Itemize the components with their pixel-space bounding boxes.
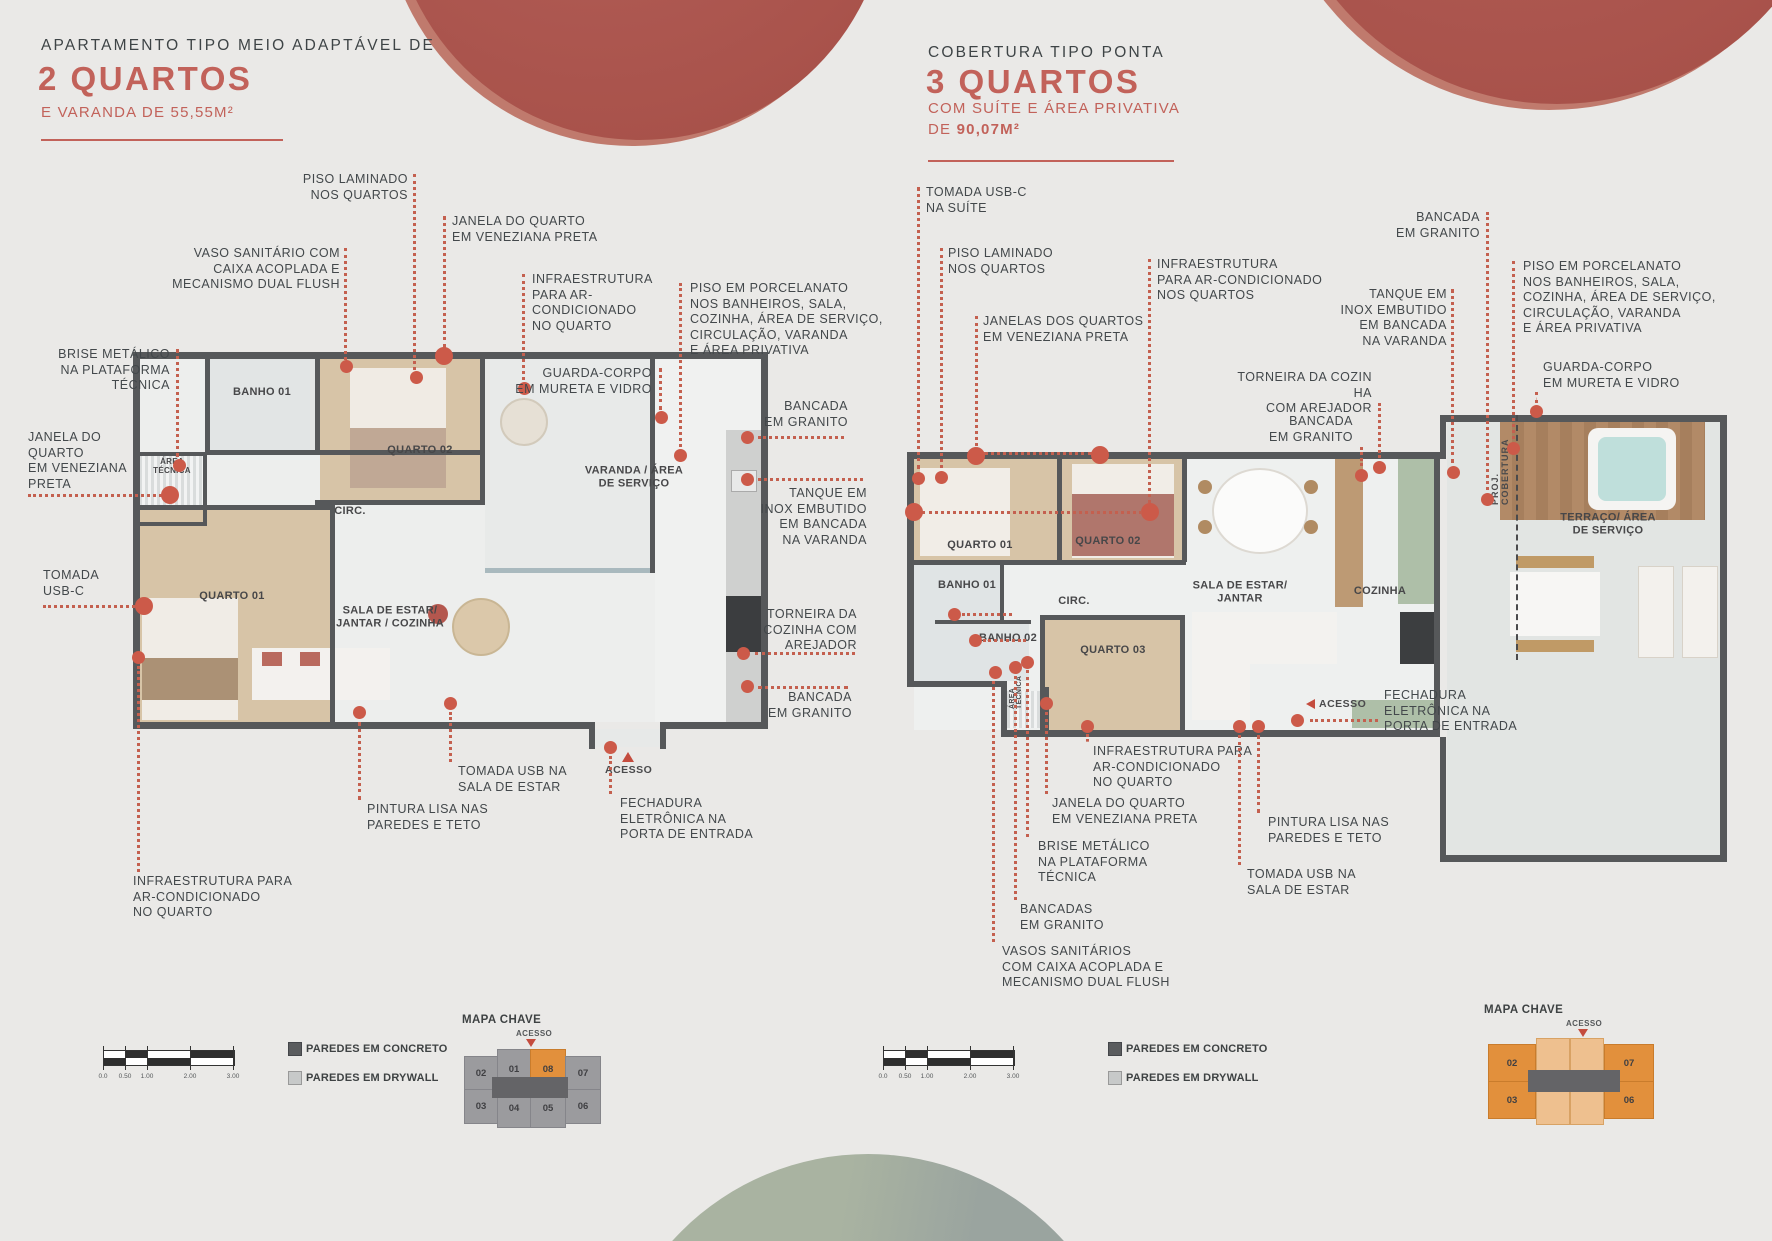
legend-label-concrete: PAREDES EM CONCRETO	[306, 1043, 448, 1055]
room-label-quarto2: QUARTO 02	[387, 444, 452, 457]
leader-line	[43, 605, 135, 608]
right-title-divider	[928, 160, 1174, 162]
map-unit-06: 06	[565, 1089, 601, 1124]
room-label-varanda: VARANDA / ÁREA DE SERVIÇO	[585, 465, 683, 490]
callout-dot	[948, 608, 961, 621]
scale-tick	[190, 1046, 191, 1070]
callout-dot	[741, 680, 754, 693]
varanda-table	[500, 398, 548, 446]
callout-dot	[655, 411, 668, 424]
annotation-janelas-quartos: JANELAS DOS QUARTOS EM VENEZIANA PRETA	[983, 314, 1143, 345]
room-label-terraco: TERRAÇO/ ÁREA DE SERVIÇO	[1560, 512, 1656, 537]
left-title-headline: 2 QUARTOS	[38, 60, 252, 98]
leader-line	[1257, 735, 1260, 813]
leader-line	[176, 349, 179, 457]
oval-dining-table	[1212, 468, 1308, 554]
wall	[935, 620, 1031, 624]
leader-line	[1378, 403, 1381, 458]
scale-tick-label: 2.00	[184, 1073, 197, 1080]
legend-swatch-drywall	[1108, 1071, 1122, 1085]
right-quarto3-floor	[1045, 620, 1180, 730]
annotation-brise: BRISE METÁLICO NA PLATAFORMA TÉCNICA	[1038, 839, 1150, 886]
annotation-tanque: TANQUE EM INOX EMBUTIDO EM BANCADA NA VA…	[717, 486, 867, 548]
callout-dot	[989, 666, 1002, 679]
legend-label-drywall: PAREDES EM DRYWALL	[1126, 1072, 1259, 1084]
room-label-banho1: BANHO 01	[938, 579, 996, 592]
annotation-infra-ar: INFRAESTRUTURA PARA AR- CONDICIONADO NO …	[532, 272, 653, 334]
callout-dot	[340, 360, 353, 373]
right-title-eyebrow: COBERTURA TIPO PONTA	[928, 44, 1165, 62]
scale-bar	[103, 1050, 235, 1066]
callout-dot	[1021, 656, 1034, 669]
wall	[1440, 737, 1446, 857]
room-label-quarto1: QUARTO 01	[947, 539, 1012, 552]
wall	[133, 722, 593, 729]
scale-segment	[884, 1058, 906, 1065]
annotation-janela-quarto-top: JANELA DO QUARTO EM VENEZIANA PRETA	[452, 214, 598, 245]
sofa	[1192, 612, 1337, 664]
annotation-tomada-usbc-suite: TOMADA USB-C NA SUÍTE	[926, 185, 1027, 216]
leader-line	[413, 174, 416, 370]
annotation-torneira: TORNEIRA DA COZINHA COM AREJADOR	[707, 607, 857, 654]
scale-segment	[191, 1058, 234, 1065]
callout-dot	[741, 473, 754, 486]
decor-circle-bottom	[604, 1154, 1132, 1241]
scale-segment	[971, 1058, 1014, 1065]
right-title-area-value: 90,07M²	[957, 121, 1020, 138]
leader-line	[755, 652, 855, 655]
scale-tick-label: 2.00	[964, 1073, 977, 1080]
room-label-quarto1: QUARTO 01	[199, 590, 264, 603]
callout-dot	[444, 697, 457, 710]
callout-dot	[1081, 720, 1094, 733]
callout-dot	[161, 486, 179, 504]
wall	[135, 452, 207, 456]
room-label-sala: SALA DE ESTAR/ JANTAR / COZINHA	[336, 605, 444, 630]
callout-dot	[967, 447, 985, 465]
scale-segment	[928, 1051, 971, 1058]
scale-segment	[971, 1051, 1014, 1058]
leader-line	[917, 187, 920, 469]
annotation-piso-laminado: PISO LAMINADO NOS QUARTOS	[948, 246, 1053, 277]
callout-dot	[1141, 503, 1159, 521]
annotation-torneira: TORNEIRA DA COZIN​HA COM AREJADOR	[1222, 370, 1372, 417]
scale-segment	[126, 1058, 148, 1065]
left-title-eyebrow: APARTAMENTO TIPO MEIO ADAPTÁVEL DE	[41, 37, 435, 55]
scale-tick	[970, 1046, 971, 1070]
annotation-vaso-sanitario: VASO SANITÁRIO COM CAIXA ACOPLADA E MECA…	[140, 246, 340, 293]
annotation-piso-laminado: PISO LAMINADO NOS QUARTOS	[248, 172, 408, 203]
scale-segment	[191, 1051, 234, 1058]
right-title-subline2-prefix: DE	[928, 121, 957, 138]
annotation-tomada-usb-sala: TOMADA USB NA SALA DE ESTAR	[458, 764, 567, 795]
wall	[1040, 615, 1185, 620]
wall	[330, 505, 335, 722]
leader-line	[1310, 719, 1378, 722]
callout-dot	[912, 472, 925, 485]
leader-line	[1148, 259, 1151, 503]
wall	[660, 722, 666, 749]
scale-tick	[103, 1046, 104, 1070]
scale-tick-label: 0.50	[119, 1073, 132, 1080]
right-title-subline2: DE 90,07M²	[928, 121, 1020, 138]
legend-swatch-concrete	[1108, 1042, 1122, 1056]
leader-line	[1451, 289, 1454, 463]
callout-dot	[1481, 493, 1494, 506]
dining-table	[452, 598, 510, 656]
callout-dot	[1373, 461, 1386, 474]
kitchen-counter	[1398, 459, 1434, 604]
lounger	[1682, 566, 1718, 658]
blanket-quarto2	[350, 428, 446, 488]
wall	[660, 722, 768, 729]
terrace-table	[1510, 572, 1600, 636]
annotation-janela-quarto-left: JANELA DO QUARTO EM VENEZIANA PRETA	[28, 430, 127, 492]
dining-chair	[1304, 520, 1318, 534]
callout-dot	[1355, 469, 1368, 482]
scale-tick-label: 0.50	[899, 1073, 912, 1080]
wall	[1440, 415, 1446, 459]
leader-line	[940, 248, 943, 468]
annotation-bancada-2: BANCADA EM GRANITO	[702, 690, 852, 721]
acesso-arrow-icon	[622, 752, 634, 762]
leader-line	[975, 316, 978, 446]
wall	[914, 560, 1186, 565]
annotation-tomada-usbc: TOMADA USB-C	[43, 568, 99, 599]
scale-tick	[927, 1046, 928, 1070]
scale-tick	[125, 1046, 126, 1070]
map-core	[1528, 1070, 1620, 1092]
callout-dot	[1507, 442, 1520, 455]
annotation-tanque: TANQUE EM INOX EMBUTIDO EM BANCADA NA VA…	[1297, 287, 1447, 349]
scale-segment	[104, 1058, 126, 1065]
scale-segment	[906, 1058, 928, 1065]
scale-tick	[1013, 1046, 1014, 1070]
mapa-chave-title: MAPA CHAVE	[462, 1014, 541, 1026]
left-plan-banho1-floor	[210, 359, 315, 450]
wall	[140, 505, 330, 510]
sofa-cushion	[262, 652, 282, 666]
annotation-guarda-corpo: GUARDA-CORPO EM MURETA E VIDRO	[1543, 360, 1680, 391]
annotation-fechadura: FECHADURA ELETRÔNICA NA PORTA DE ENTRADA	[620, 796, 753, 843]
leader-line	[1535, 392, 1538, 403]
terrace-chairs	[1516, 556, 1594, 568]
leader-line	[1512, 261, 1515, 439]
legend-label-drywall: PAREDES EM DRYWALL	[306, 1072, 439, 1084]
callout-dot	[1252, 720, 1265, 733]
leader-line	[758, 686, 848, 689]
scale-segment	[906, 1051, 928, 1058]
leader-line	[449, 712, 452, 762]
annotation-piso-porcelanato: PISO EM PORCELANATO NOS BANHEIROS, SALA,…	[1523, 259, 1716, 337]
callout-dot	[353, 706, 366, 719]
legend-swatch-drywall	[288, 1071, 302, 1085]
sofa-cushion	[300, 652, 320, 666]
leader-line	[758, 478, 863, 481]
room-label-proj-cobertura: PROJ. COBERTURA	[1490, 405, 1510, 505]
scale-tick-label: 0.0	[878, 1073, 887, 1080]
mapa-chave-acesso-label: ACESSO	[1566, 1019, 1602, 1028]
callout-dot	[132, 651, 145, 664]
leader-line	[1045, 712, 1048, 794]
wall	[1720, 415, 1727, 862]
wall	[1180, 620, 1185, 731]
annotation-guarda-corpo: GUARDA-CORPO EM MURETA E VIDRO	[492, 366, 652, 397]
callout-dot	[674, 449, 687, 462]
annotation-vasos: VASOS SANITÁRIOS COM CAIXA ACOPLADA E ME…	[1002, 944, 1170, 991]
appliance	[1400, 612, 1434, 664]
leader-line	[28, 494, 162, 497]
leader-line	[922, 511, 1142, 514]
leader-line	[992, 681, 995, 942]
leader-line	[344, 248, 347, 360]
scale-bar	[883, 1050, 1015, 1066]
callout-dot	[737, 647, 750, 660]
legend-swatch-concrete	[288, 1042, 302, 1056]
callout-dot	[1447, 466, 1460, 479]
acesso-arrow-icon	[1306, 699, 1315, 709]
callout-dot	[1009, 661, 1022, 674]
acesso-label: ACESSO	[605, 764, 652, 776]
mapa-chave-title: MAPA CHAVE	[1484, 1004, 1563, 1016]
callout-dot	[969, 634, 982, 647]
callout-dot	[905, 503, 923, 521]
room-label-circ: CIRC.	[1058, 595, 1089, 608]
mapa-chave-acesso-label: ACESSO	[516, 1029, 552, 1038]
callout-dot	[435, 347, 453, 365]
wall	[1057, 455, 1062, 562]
scale-tick	[147, 1046, 148, 1070]
wall	[480, 355, 485, 505]
scale-tick-label: 1.00	[921, 1073, 934, 1080]
wall	[205, 355, 210, 455]
annotation-fechadura: FECHADURA ELETRÔNICA NA PORTA DE ENTRADA	[1384, 688, 1517, 735]
scale-segment	[148, 1051, 191, 1058]
wall	[1440, 855, 1727, 862]
callout-dot	[935, 471, 948, 484]
leader-line	[1486, 212, 1489, 490]
scale-segment	[104, 1051, 126, 1058]
leader-line	[1026, 670, 1029, 837]
scale-tick	[233, 1046, 234, 1070]
dining-chair	[1198, 480, 1212, 494]
right-title-subline1: COM SUÍTE E ÁREA PRIVATIVA	[928, 100, 1180, 117]
room-label-banho1: BANHO 01	[233, 386, 291, 399]
acesso-arrow-icon	[526, 1039, 536, 1047]
wall	[135, 522, 207, 526]
left-title-divider	[41, 139, 283, 141]
wall	[203, 452, 207, 526]
scale-segment	[884, 1051, 906, 1058]
dining-chair	[1304, 480, 1318, 494]
scale-segment	[148, 1058, 191, 1065]
scale-segment	[126, 1051, 148, 1058]
leader-line	[962, 613, 1012, 616]
callout-dot	[135, 597, 153, 615]
annotation-tomada-usb-sala: TOMADA USB NA SALA DE ESTAR	[1247, 867, 1356, 898]
annotation-piso-porcelanato: PISO EM PORCELANATO NOS BANHEIROS, SALA,…	[690, 281, 883, 359]
callout-dot	[173, 459, 186, 472]
map-core	[492, 1077, 568, 1098]
scale-tick	[883, 1046, 884, 1070]
acesso-label: ACESSO	[1319, 698, 1366, 710]
scale-segment	[928, 1058, 971, 1065]
wall	[315, 355, 320, 455]
room-label-banho2: BANHO 02	[979, 632, 1037, 645]
room-label-quarto3: QUARTO 03	[1080, 644, 1145, 657]
leader-line	[1360, 447, 1363, 466]
leader-line	[1238, 735, 1241, 865]
callout-dot	[741, 431, 754, 444]
annotation-pintura: PINTURA LISA NAS PAREDES E TETO	[1268, 815, 1389, 846]
callout-dot	[604, 741, 617, 754]
dining-chair	[1198, 520, 1212, 534]
scale-tick-label: 3.00	[1007, 1073, 1020, 1080]
annotation-bancada-2: BANCADA EM GRANITO	[1203, 414, 1353, 445]
annotation-bancada-top: BANCADA EM GRANITO	[1330, 210, 1480, 241]
left-title-subline: E VARANDA DE 55,55M²	[41, 104, 234, 121]
room-label-circ: CIRC.	[334, 505, 365, 518]
room-label-quarto2: QUARTO 02	[1075, 535, 1140, 548]
leader-line	[1014, 676, 1017, 900]
legend-label-concrete: PAREDES EM CONCRETO	[1126, 1043, 1268, 1055]
leader-line	[983, 639, 1026, 642]
leader-line	[137, 666, 140, 872]
callout-dot	[1040, 697, 1053, 710]
throw-quarto1	[142, 658, 238, 700]
annotation-bancadas: BANCADAS EM GRANITO	[1020, 902, 1104, 933]
callout-dot	[1233, 720, 1246, 733]
scale-tick-label: 1.00	[141, 1073, 154, 1080]
leader-line	[443, 216, 446, 348]
annotation-bancada-1: BANCADA EM GRANITO	[698, 399, 848, 430]
scale-tick-label: 0.0	[98, 1073, 107, 1080]
scale-tick-label: 3.00	[227, 1073, 240, 1080]
callout-dot	[410, 371, 423, 384]
annotation-brise: BRISE METÁLICO NA PLATAFORMA TÉCNICA	[30, 347, 170, 394]
leader-line	[1086, 734, 1089, 742]
wall	[1182, 455, 1187, 562]
room-label-cozinha: COZINHA	[1354, 585, 1406, 598]
wall	[907, 452, 914, 687]
callout-dot	[1091, 446, 1109, 464]
leader-line	[609, 756, 612, 794]
leader-line	[522, 274, 525, 380]
right-title-headline: 3 QUARTOS	[926, 63, 1140, 101]
leader-line	[358, 722, 361, 800]
annotation-pintura: PINTURA LISA NAS PAREDES E TETO	[367, 802, 488, 833]
wall	[1001, 730, 1440, 737]
leader-line	[659, 368, 662, 410]
lounger	[1638, 566, 1674, 658]
map-unit-07: 07	[565, 1056, 601, 1090]
annotation-infra-ar-2: INFRAESTRUTURA PARA AR-CONDICIONADO NO Q…	[133, 874, 292, 921]
room-label-sala: SALA DE ESTAR/ JANTAR	[1193, 580, 1288, 605]
acesso-arrow-icon	[1578, 1029, 1588, 1037]
callout-dot	[1291, 714, 1304, 727]
sofa-chaise	[1192, 664, 1250, 720]
brochure-page: APARTAMENTO TIPO MEIO ADAPTÁVEL DE 2 QUA…	[0, 0, 1772, 1241]
scale-tick	[905, 1046, 906, 1070]
annotation-janela-quarto: JANELA DO QUARTO EM VENEZIANA PRETA	[1052, 796, 1198, 827]
leader-line	[984, 452, 1092, 455]
wall	[1440, 415, 1727, 422]
wall	[1003, 687, 1007, 732]
annotation-infra-ar-quarto: INFRAESTRUTURA PARA AR-CONDICIONADO NO Q…	[1093, 744, 1252, 791]
leader-line	[758, 436, 844, 439]
jacuzzi-water	[1598, 437, 1666, 501]
leader-line	[679, 283, 682, 447]
terrace-chairs	[1516, 640, 1594, 652]
callout-dot	[1530, 405, 1543, 418]
guard-rail	[485, 568, 650, 573]
